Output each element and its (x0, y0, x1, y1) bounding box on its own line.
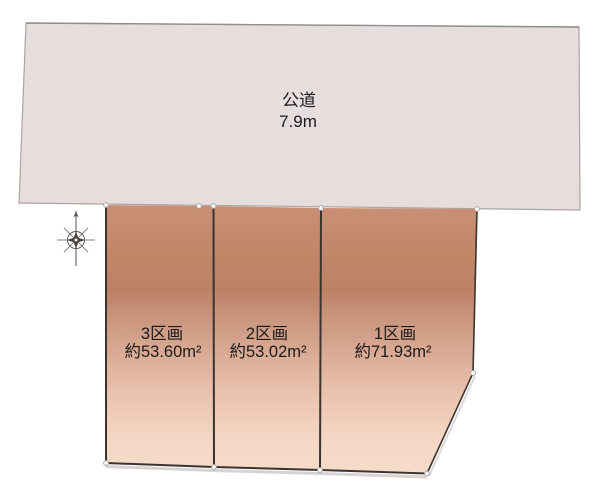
plot-map-svg: 公道 7.9m (0, 0, 600, 488)
plot-1-name-label: 1区画 (374, 325, 416, 343)
vertex-dot (475, 207, 480, 212)
vertex-dot (318, 468, 323, 473)
plot-3-area-label: 約53.60m² (124, 342, 202, 361)
vertex-dot (211, 204, 216, 209)
plot-map-canvas: 公道 7.9m (0, 0, 600, 488)
plot-2-area-label: 約53.02m² (229, 342, 307, 361)
road-label: 公道 (282, 91, 316, 110)
vertex-dot (104, 203, 109, 208)
divider-plot2-plot1 (320, 208, 321, 470)
plot-1-area-label: 約71.93m² (354, 342, 432, 361)
vertex-dot (197, 204, 202, 209)
vertex-dot (104, 461, 109, 466)
compass-rose-icon (57, 211, 95, 266)
plot-3-name-label: 3区画 (141, 325, 183, 343)
vertex-dot (425, 471, 430, 476)
plot-2-name-label: 2区画 (246, 325, 288, 343)
vertex-dot (212, 465, 217, 470)
road-width-label: 7.9m (279, 112, 317, 131)
divider-plot3-plot2 (214, 206, 215, 467)
vertex-dot (471, 371, 476, 376)
vertex-dot (319, 206, 324, 211)
